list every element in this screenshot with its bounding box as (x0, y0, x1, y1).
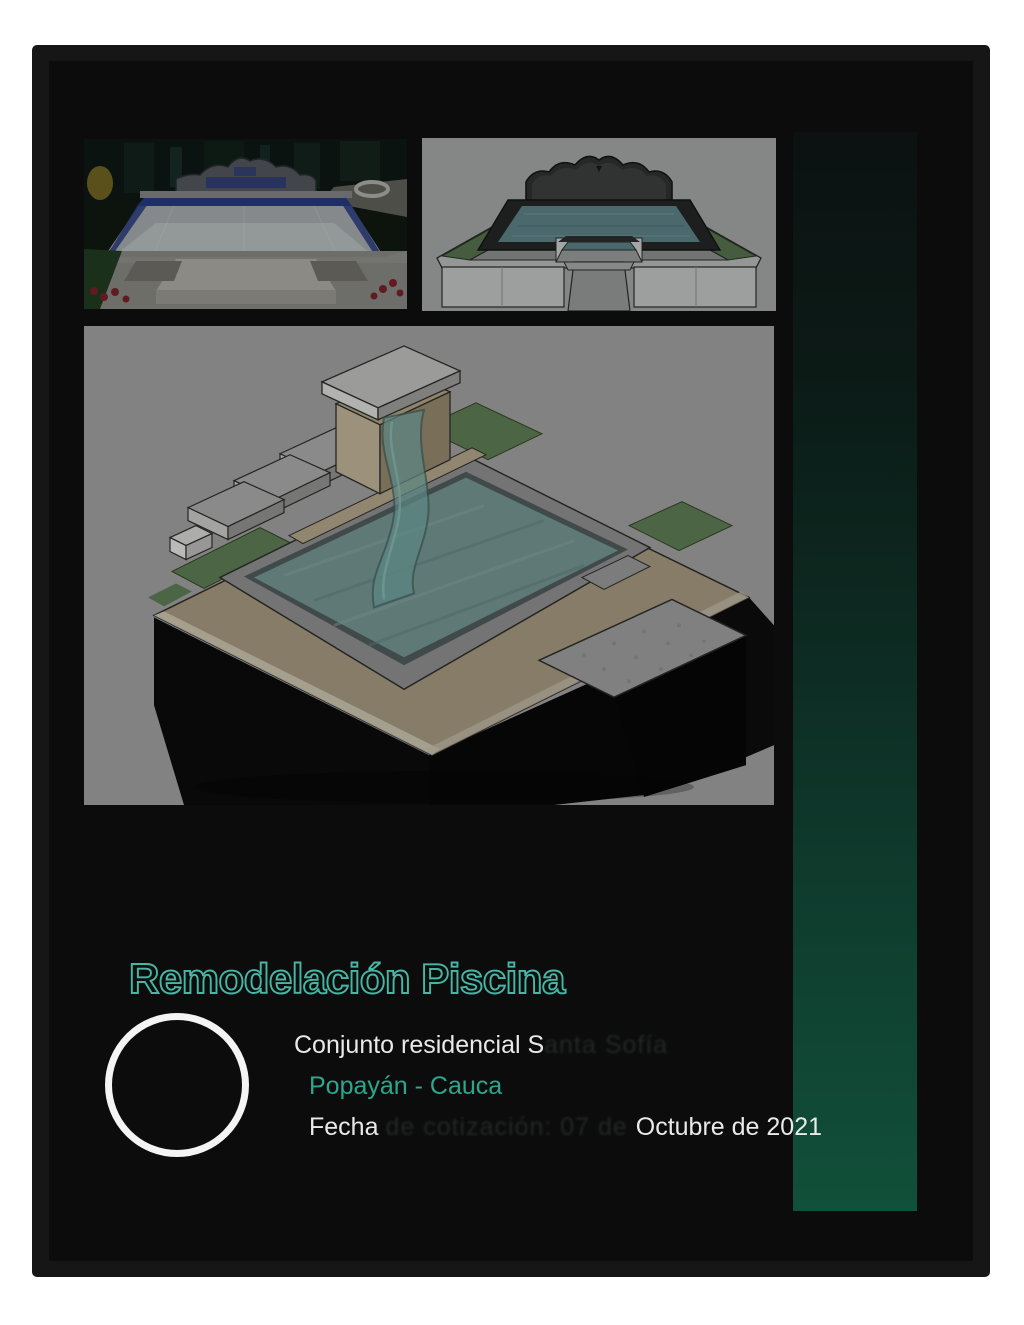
pool-isometric-render (84, 326, 774, 805)
residence-line: Conjunto residencial Santa Sofía (294, 1025, 814, 1066)
pool-isometric-render-image (84, 326, 774, 805)
date-prefix-text: Fecha (309, 1113, 385, 1141)
info-block: Conjunto residencial Santa Sofía Popayán… (294, 1025, 814, 1148)
pool-front-render (422, 138, 776, 311)
date-visible-text: Octubre de 2021 (636, 1113, 822, 1141)
page-background: Remodelación Piscina Conjunto residencia… (0, 0, 1024, 1325)
pool-front-render-image (422, 138, 776, 311)
pool-before-photo-image (84, 139, 407, 309)
date-line: Fecha de cotización: 07 de Octubre de 20… (294, 1107, 814, 1148)
residence-text: Conjunto residencial S (294, 1031, 544, 1059)
page-title: Remodelación Piscina (129, 955, 565, 1003)
cover-inner-panel: Remodelación Piscina Conjunto residencia… (48, 60, 974, 1262)
location-line: Popayán - Cauca (294, 1066, 814, 1107)
date-ghost-text: de cotización: 07 de (385, 1113, 635, 1141)
cover-panel: Remodelación Piscina Conjunto residencia… (32, 45, 990, 1277)
pool-before-photo (84, 139, 407, 309)
residence-ghost-text: anta Sofía (544, 1031, 668, 1059)
logo-circle (105, 1013, 249, 1157)
